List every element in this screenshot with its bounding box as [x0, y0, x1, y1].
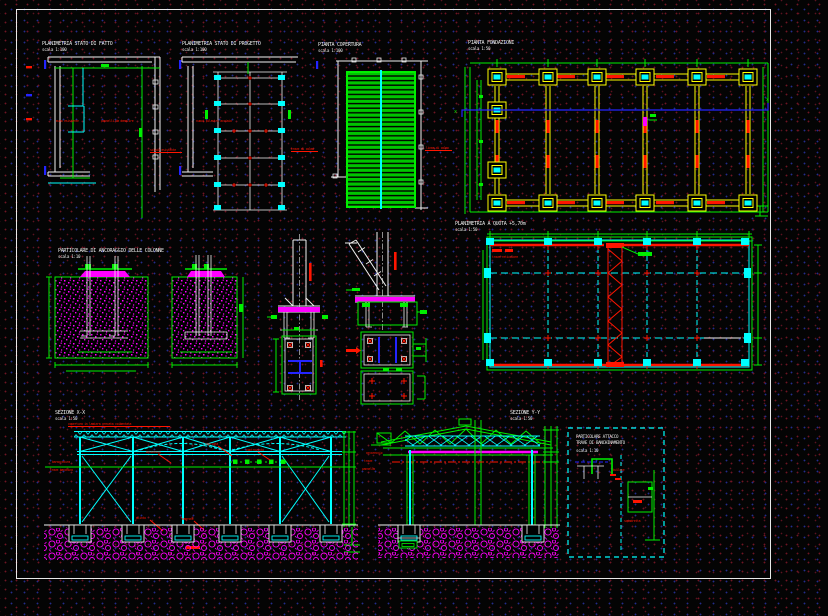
annotation: plinto	[136, 516, 146, 520]
plan-existing-scale: scala 1:100	[42, 47, 67, 52]
annotation: magrone	[182, 517, 194, 521]
annotation: squadretta	[624, 519, 641, 523]
base-detail-column	[267, 234, 328, 400]
red-arrow	[346, 347, 361, 354]
plan-project-view: PLANIMETRIA STATO DI PROGETTO scala 1:10…	[179, 41, 318, 210]
annotation: arcarecci	[146, 450, 161, 454]
annotation: pannelli da demolire	[101, 119, 134, 123]
annotation: trave reticolare	[492, 255, 518, 259]
foundation-plan-scale: scala 1:50	[468, 46, 491, 51]
section-yy-scale: scala 1:50	[510, 416, 533, 421]
annotation: trave	[364, 459, 372, 463]
anchor-detail-scale: scala 1:10	[58, 254, 81, 259]
annotation: linea di colmo	[426, 146, 449, 150]
column-markers	[214, 75, 285, 210]
annotation: baraccatura	[52, 460, 70, 464]
wind-bracing-truss	[606, 243, 624, 367]
anchor-detail-view: PARTICOLARE DI ANCORAGGIO DELLE COLONNE …	[46, 248, 243, 371]
level-plan-scale: scala 1:50	[455, 227, 478, 232]
annotation: capriata	[205, 442, 218, 446]
section-xx-view: SEZIONE X-X scala 1:50 copertura in lami…	[44, 410, 360, 560]
roof-plan-view: PIANTA COPERTURA scala 1:100 linea di co…	[316, 42, 452, 210]
foundation-plinths	[488, 69, 757, 211]
beam-attachment-detail: PARTICOLARE ATTACCO TRAVE DI BANCHINAMEN…	[568, 428, 664, 557]
annotation: trave di colmo	[291, 147, 314, 151]
annotation: muro esistente	[56, 119, 79, 123]
anchor-block-b	[172, 255, 243, 368]
section-marker-x-left: x	[454, 109, 457, 115]
beam-detail-title-1: PARTICOLARE ATTACCO	[576, 434, 619, 439]
section-marker-x-right: x	[766, 97, 769, 103]
section-yy-view: SEZIONE Y-Y scala 1:50 arcareccio trave …	[362, 410, 560, 558]
red-beam-labels	[496, 75, 750, 204]
annotation: bullone	[613, 468, 625, 472]
base-detail-braced-column	[345, 232, 427, 404]
cad-drawing: PLANIMETRIA STATO DI FATTO scala 1:100 m…	[0, 0, 828, 616]
level-plan-view: PLANIMETRIA A QUOTA +5,70m scala 1:50	[455, 221, 762, 370]
annotation: copertura in lamiera grecata coibentata	[68, 422, 132, 426]
section-xx-scale: scala 1:50	[55, 416, 78, 421]
annotation: controvento	[246, 448, 264, 452]
cad-canvas: PLANIMETRIA STATO DI FATTO scala 1:100 m…	[0, 0, 828, 616]
anchor-block-a	[46, 256, 148, 371]
annotation: nuovi pilastri acciaio	[196, 119, 232, 123]
beam-detail-scale: scala 1:10	[576, 448, 599, 453]
margin-ticks	[26, 66, 32, 120]
foundation-plan-view: PIANTA FONDAZIONI scala 1:50	[454, 40, 769, 216]
beam-detail-title-2: TRAVE DI BANCHINAMENTO	[576, 440, 626, 445]
annotation: solaio esistente	[150, 148, 176, 152]
plan-project-scale: scala 1:100	[182, 47, 207, 52]
roof-plan-scale: scala 1:100	[318, 48, 343, 53]
annotation: pannello	[362, 467, 375, 471]
section-line-xx	[462, 103, 768, 117]
annotation: arcareccio	[366, 451, 383, 455]
annotation: trave banchina	[50, 468, 73, 472]
plan-existing-view: PLANIMETRIA STATO DI FATTO scala 1:100 m…	[42, 41, 182, 218]
column-base-details	[267, 232, 427, 404]
